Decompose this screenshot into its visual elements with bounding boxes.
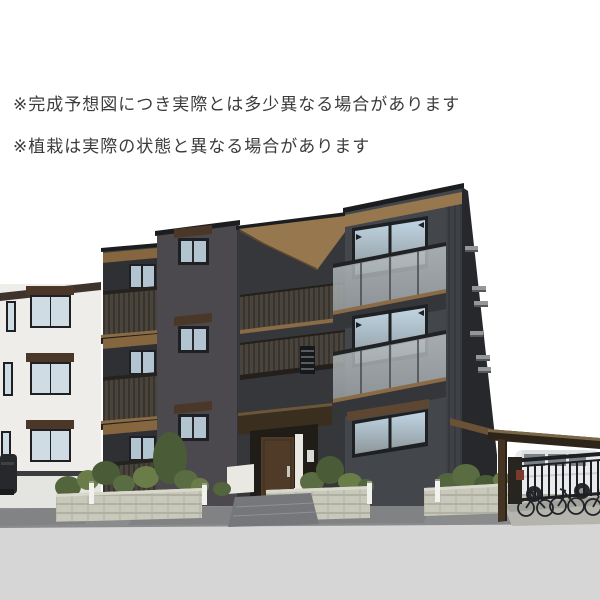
neighbor-fence-rail xyxy=(5,471,88,476)
tower-window-3f xyxy=(174,225,212,265)
louver-vent xyxy=(300,346,315,374)
right-wing xyxy=(333,183,464,506)
parked-car-left xyxy=(0,454,17,495)
entrance-steps xyxy=(228,493,319,527)
tower-window-2f xyxy=(174,313,212,353)
porch-cheek-wall-left xyxy=(227,464,254,494)
neighbor-awning-windows xyxy=(26,286,74,462)
rendering-canvas: ※完成予想図につき実際とは多少異なる場合があります ※植栽は実際の状態と異なる場… xyxy=(0,0,600,600)
foreground-pavement xyxy=(0,522,600,600)
carport-area xyxy=(488,429,600,526)
tower-window-1f xyxy=(174,401,212,441)
building-rendering xyxy=(0,0,600,600)
storage-cabinet xyxy=(508,457,522,504)
door-handle xyxy=(287,466,290,477)
intercom-panel xyxy=(307,450,314,462)
